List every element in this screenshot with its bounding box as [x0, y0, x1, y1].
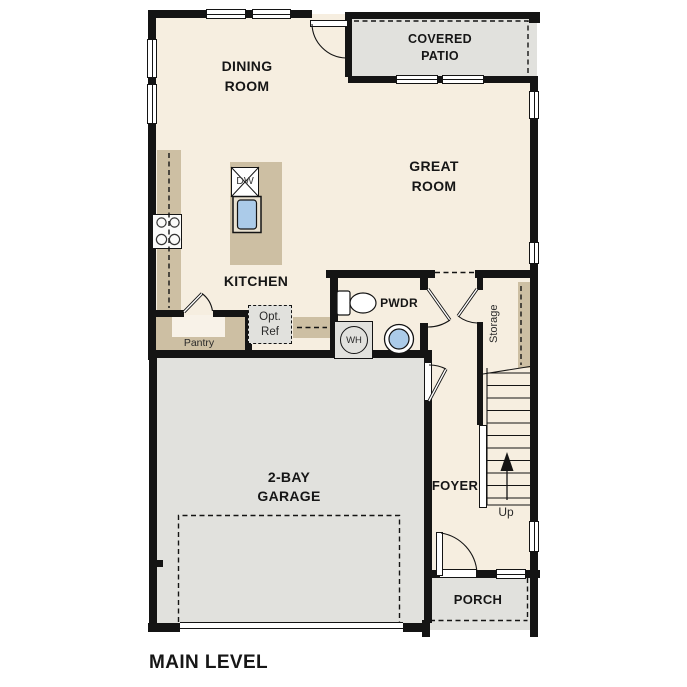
wall-top-1: [148, 10, 207, 18]
wall-patio-top: [345, 12, 540, 19]
pantry-label: Pantry: [163, 337, 235, 350]
window-dining-left-1: [147, 39, 157, 78]
window-right-2: [529, 242, 539, 264]
wall-garage-east: [424, 401, 432, 623]
front-door-opening: [439, 569, 477, 578]
garage-label: 2-BAY GARAGE: [241, 468, 337, 506]
water-heater-circle: WH: [340, 326, 368, 354]
wall-right-5: [530, 578, 538, 637]
wall-right-3: [530, 263, 538, 522]
dining-room-label: DINING ROOM: [199, 57, 295, 97]
wall-foyer-south-3: [525, 570, 540, 578]
up-label: Up: [490, 505, 522, 520]
wall-foyer-south-2: [477, 570, 497, 578]
wall-garage-east-top: [424, 350, 432, 362]
wall-garage-bottom-2: [403, 623, 430, 632]
wh-label: WH: [346, 335, 362, 346]
wall-garage-jog: [156, 560, 163, 567]
garage-entry-opening: [424, 362, 432, 401]
range-cooktop: [152, 214, 182, 249]
window-greatroom-north-2: [442, 75, 484, 84]
window-dining-top-1: [206, 9, 246, 19]
front-door-leaf: [436, 532, 443, 576]
wall-garage-bottom-1: [148, 623, 180, 632]
wall-kitchen-south-1: [148, 310, 184, 317]
window-greatroom-north-1: [396, 75, 438, 84]
wall-greatroom-north-1: [348, 76, 397, 83]
stair-rail: [479, 425, 487, 508]
kitchen-label: KITCHEN: [208, 272, 304, 292]
nook-counter: [293, 317, 330, 338]
great-room-label: GREAT ROOM: [386, 157, 482, 197]
water-heater: WH: [334, 321, 373, 359]
wall-greatroom-north-3: [483, 76, 538, 83]
window-foyer-south: [496, 569, 526, 579]
dw-label: DW: [231, 175, 259, 188]
floor-plan: Opt. Ref WH: [0, 0, 687, 687]
storage-label: Storage: [488, 298, 510, 350]
covered-patio-label: COVERED PATIO: [392, 31, 488, 65]
porch-label: PORCH: [430, 591, 526, 609]
wall-patio-corner: [529, 12, 540, 23]
wall-pwdr-east-top: [420, 274, 428, 290]
wall-garage-top: [148, 350, 432, 358]
opt-ref-label: Opt. Ref: [259, 310, 281, 340]
pantry-floor: [172, 315, 225, 337]
wall-garage-left: [149, 358, 157, 632]
optional-refrigerator: Opt. Ref: [248, 305, 292, 344]
window-dining-left-2: [147, 84, 157, 124]
wall-top-2: [245, 10, 252, 18]
wall-stairs-west: [477, 322, 483, 425]
wall-storage-west-top: [477, 274, 483, 290]
wall-right-4: [530, 552, 538, 570]
wall-left-1: [148, 10, 156, 39]
wall-greatroom-south-2: [475, 270, 538, 278]
wall-top-3: [290, 10, 312, 18]
plan-title: MAIN LEVEL: [149, 650, 349, 677]
foyer-label: FOYER: [407, 477, 503, 495]
wall-greatroom-south-1: [326, 270, 435, 278]
window-foyer-right: [529, 521, 539, 552]
wall-right-2: [530, 118, 538, 243]
garage-vehicle-door: [180, 622, 403, 629]
patio-door-leaf: [310, 20, 348, 27]
window-right-1: [529, 91, 539, 119]
pwdr-label: PWDR: [375, 295, 423, 312]
window-dining-top-2: [252, 9, 291, 19]
